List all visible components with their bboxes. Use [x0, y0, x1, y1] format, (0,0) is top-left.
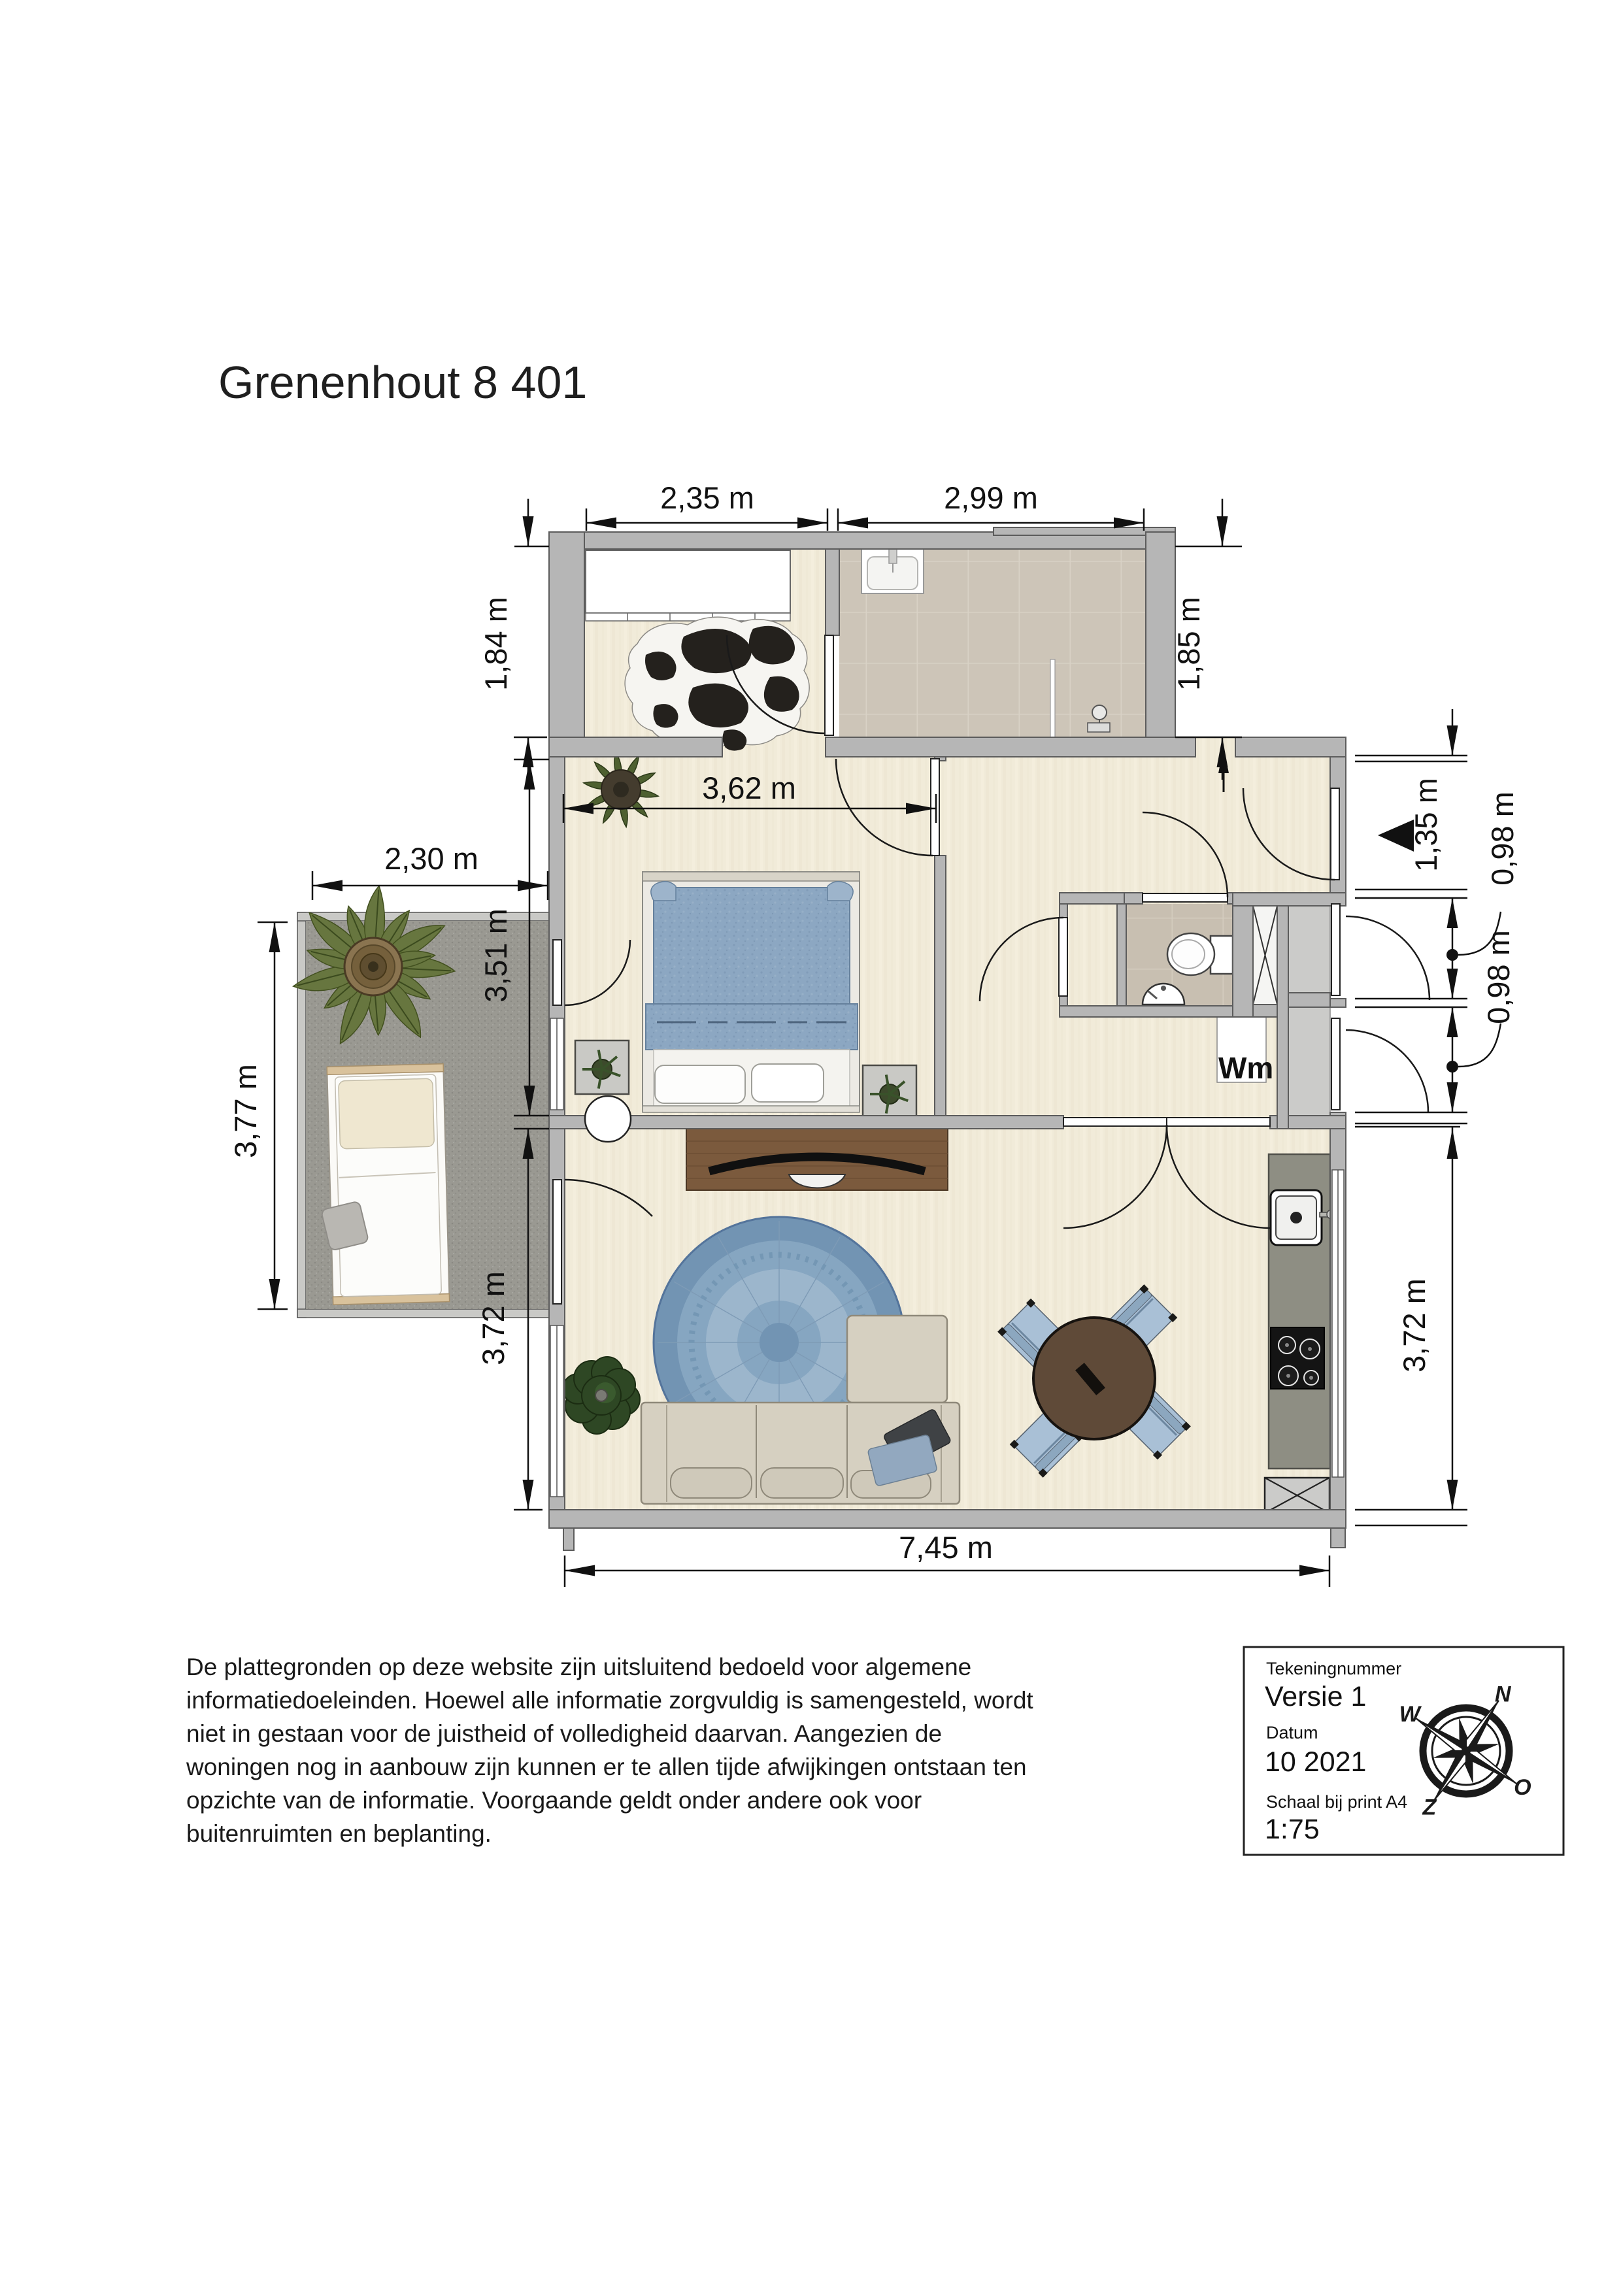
svg-text:1,84 m: 1,84 m — [478, 597, 513, 691]
svg-text:W: W — [1399, 1702, 1422, 1727]
svg-text:N: N — [1495, 1682, 1512, 1707]
svg-text:0,98 m: 0,98 m — [1481, 930, 1516, 1024]
svg-text:0,98 m: 0,98 m — [1485, 791, 1520, 886]
svg-text:Wm: Wm — [1218, 1051, 1273, 1085]
svg-text:niet in gestaan voor de juisth: niet in gestaan voor de juistheid of vol… — [186, 1720, 942, 1747]
svg-text:woningen nog in aanbouw zijn k: woningen nog in aanbouw zijn kunnen er t… — [186, 1754, 1027, 1780]
svg-text:7,45 m: 7,45 m — [899, 1530, 993, 1565]
svg-text:3,77 m: 3,77 m — [228, 1064, 263, 1158]
svg-text:2,30 m: 2,30 m — [384, 841, 478, 876]
svg-text:Schaal bij print A4: Schaal bij print A4 — [1266, 1792, 1407, 1812]
svg-text:O: O — [1514, 1775, 1531, 1800]
svg-text:buitenruimten en beplanting.: buitenruimten en beplanting. — [186, 1820, 492, 1847]
svg-text:Versie 1: Versie 1 — [1265, 1681, 1366, 1712]
svg-text:3,72 m: 3,72 m — [1397, 1278, 1431, 1373]
svg-text:2,35 m: 2,35 m — [660, 480, 754, 515]
svg-text:1:75: 1:75 — [1265, 1814, 1320, 1845]
svg-text:Datum: Datum — [1266, 1723, 1318, 1742]
svg-text:Z: Z — [1422, 1795, 1437, 1820]
svg-text:Tekeningnummer: Tekeningnummer — [1266, 1659, 1401, 1678]
svg-text:1,85 m: 1,85 m — [1171, 597, 1206, 691]
svg-text:3,51 m: 3,51 m — [478, 908, 513, 1003]
svg-text:10 2021: 10 2021 — [1265, 1746, 1366, 1778]
svg-text:De plattegronden op deze websi: De plattegronden op deze website zijn ui… — [186, 1654, 971, 1680]
svg-text:3,72 m: 3,72 m — [476, 1271, 510, 1365]
svg-text:3,62 m: 3,62 m — [702, 771, 796, 805]
svg-text:Grenenhout 8 401: Grenenhout 8 401 — [218, 357, 587, 408]
svg-text:informatiedoeleinden. Hoewel a: informatiedoeleinden. Hoewel alle inform… — [186, 1687, 1033, 1714]
svg-text:2,99 m: 2,99 m — [944, 480, 1038, 515]
svg-text:opzichte van de informatie. Vo: opzichte van de informatie. Voorgaande g… — [186, 1787, 922, 1814]
